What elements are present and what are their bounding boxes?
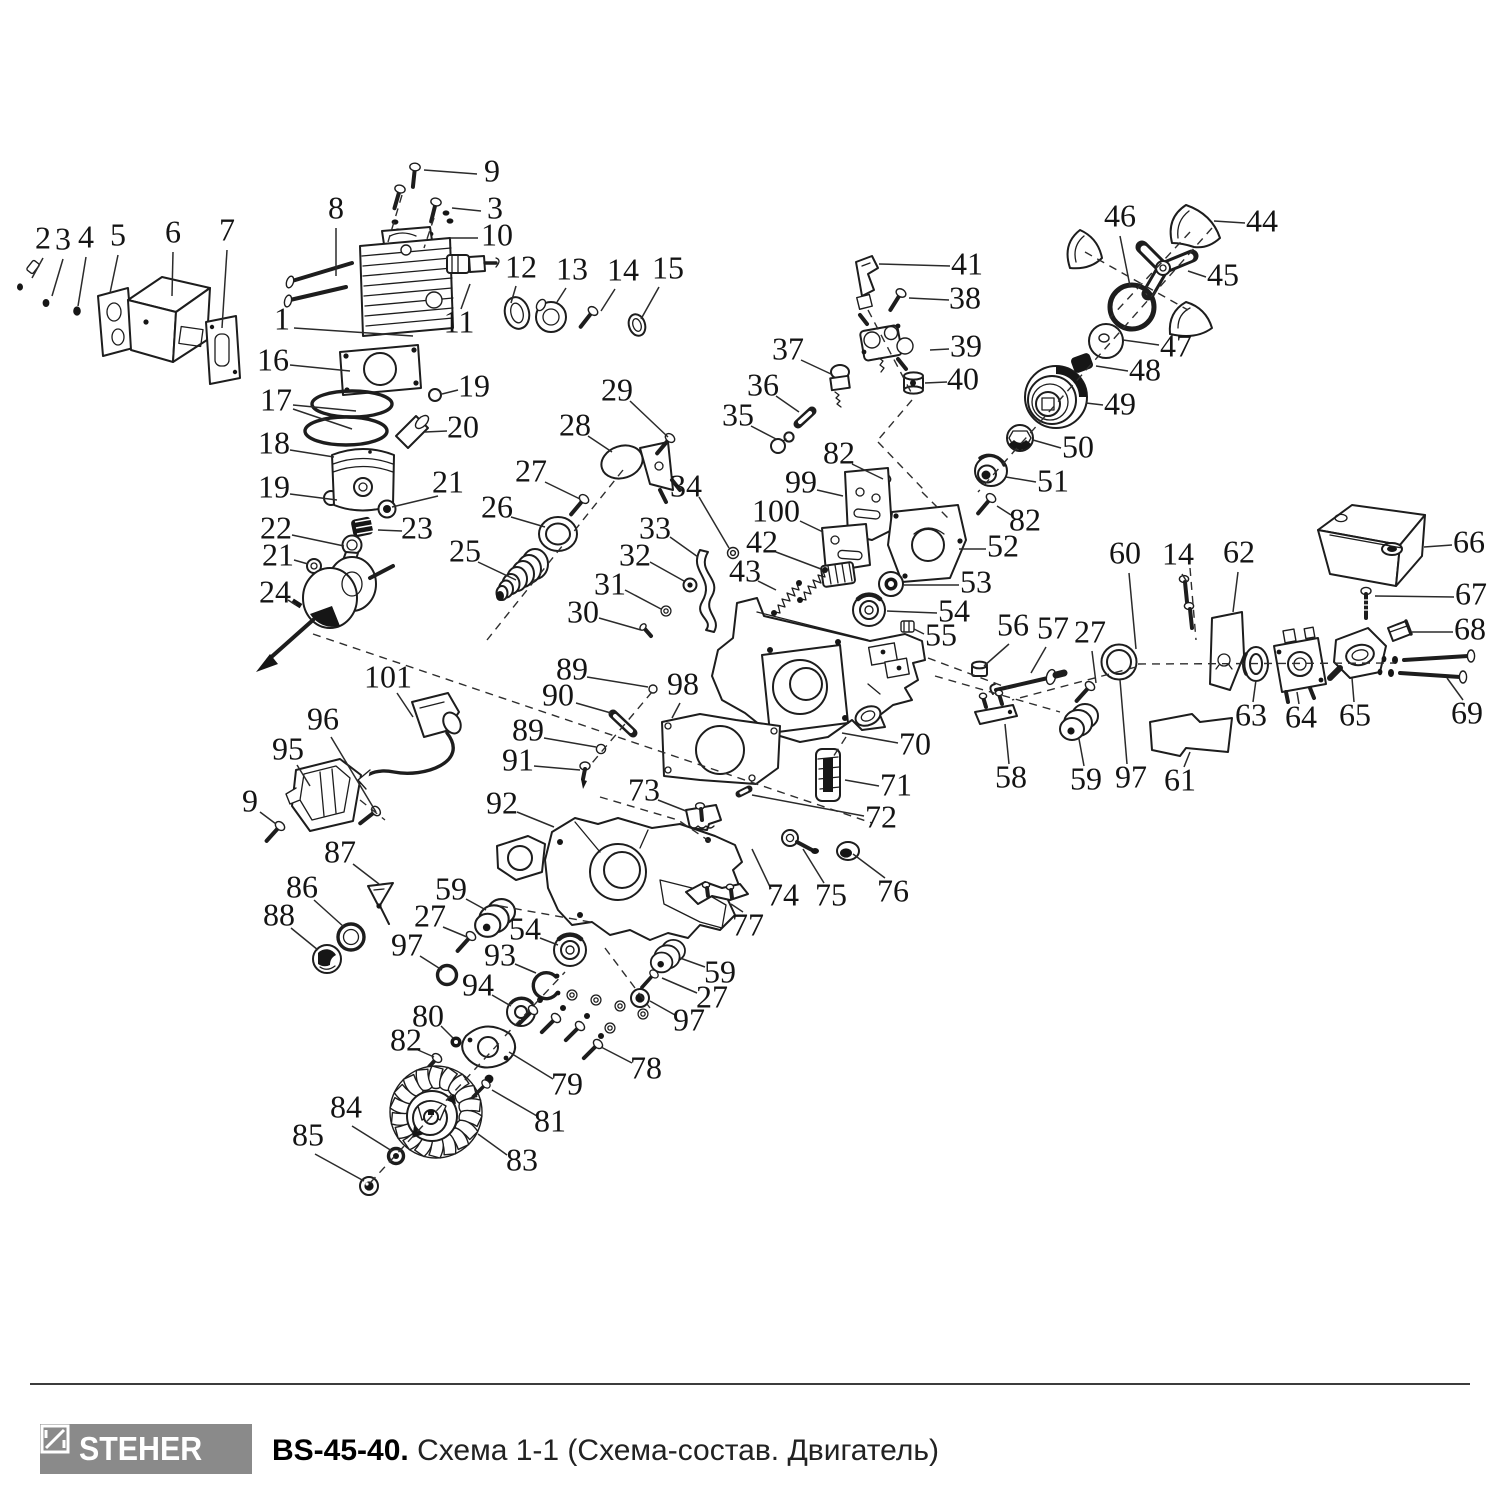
part-cover-13 xyxy=(535,298,566,332)
leader-line-44 xyxy=(1214,221,1245,223)
part-label-43: 43 xyxy=(729,552,761,588)
part-label-65: 65 xyxy=(1339,696,1371,732)
part-label-21: 21 xyxy=(432,463,464,499)
part-label-13: 13 xyxy=(556,250,588,286)
part-label-14: 14 xyxy=(607,251,639,287)
part-label-27: 27 xyxy=(1074,613,1106,649)
part-label-81: 81 xyxy=(534,1102,566,1138)
leader-line-59 xyxy=(680,958,705,967)
part-seal-26 xyxy=(539,517,577,551)
part-clutch-shoe-left xyxy=(1068,230,1102,268)
part-pin-55 xyxy=(901,621,914,632)
part-plug-cap-101 xyxy=(358,693,464,789)
part-oil-pump-39 xyxy=(860,315,913,372)
part-spark-plug xyxy=(447,255,499,273)
part-clip-68 xyxy=(1388,621,1411,641)
model-number: BS-45-40. xyxy=(272,1434,409,1467)
brand-logo: STEHER xyxy=(40,1424,252,1474)
part-screw-67 xyxy=(1361,587,1371,618)
part-label-78: 78 xyxy=(630,1049,662,1085)
leader-line-38 xyxy=(909,298,949,300)
leader-line-3 xyxy=(452,208,481,211)
part-piston-pin xyxy=(396,413,431,448)
part-label-73: 73 xyxy=(628,771,660,807)
leader-line-19 xyxy=(290,494,337,500)
exploded-parts-diagram: 2345678931011112131415161719201819212223… xyxy=(0,0,1500,1500)
part-label-45: 45 xyxy=(1207,256,1239,292)
part-label-19: 19 xyxy=(258,468,290,504)
footer-divider xyxy=(30,1383,1470,1385)
part-oiler-75 xyxy=(782,830,819,854)
leader-line-27 xyxy=(545,482,580,499)
part-label-48: 48 xyxy=(1129,351,1161,387)
part-elbow-41 xyxy=(856,256,878,309)
part-springs-43 xyxy=(771,567,828,616)
leader-line-5 xyxy=(110,255,118,293)
leader-line-46 xyxy=(1120,236,1130,286)
part-label-23: 23 xyxy=(401,509,433,545)
part-label-18: 18 xyxy=(258,424,290,460)
page: 2345678931011112131415161719201819212223… xyxy=(0,0,1500,1500)
part-worm-59c xyxy=(1060,704,1098,740)
part-grommet-71 xyxy=(816,749,840,801)
part-35 xyxy=(771,432,794,453)
part-cover-52 xyxy=(888,505,966,582)
leader-line-6 xyxy=(172,252,173,296)
part-screw-14 xyxy=(577,305,600,330)
part-label-101: 101 xyxy=(364,658,412,694)
leader-line-91 xyxy=(534,766,580,770)
leader-line-56 xyxy=(984,644,1009,666)
part-label-75: 75 xyxy=(815,876,847,912)
part-clutch-shoe-44 xyxy=(1171,205,1220,247)
brand-name: STEHER xyxy=(79,1430,202,1468)
leader-line-92 xyxy=(517,812,554,827)
part-label-25: 25 xyxy=(449,532,481,568)
part-label-97: 97 xyxy=(1115,758,1147,794)
leader-line-48 xyxy=(1096,366,1128,371)
part-label-82: 82 xyxy=(823,434,855,470)
leader-line-3 xyxy=(52,259,63,296)
part-label-62: 62 xyxy=(1223,533,1255,569)
leader-line-19 xyxy=(442,390,458,394)
leader-line-97 xyxy=(1120,680,1127,764)
leader-line-70 xyxy=(842,733,898,743)
part-label-39: 39 xyxy=(950,327,982,363)
leader-line-21 xyxy=(294,560,308,564)
leader-line-47 xyxy=(1123,340,1159,345)
part-label-51: 51 xyxy=(1037,462,1069,498)
leader-line-59 xyxy=(466,899,486,910)
part-hex-50 xyxy=(1007,425,1033,451)
part-label-82: 82 xyxy=(390,1021,422,1057)
part-label-85: 85 xyxy=(292,1116,324,1152)
part-needle-bearing-23 xyxy=(350,516,374,538)
part-label-29: 29 xyxy=(601,371,633,407)
part-bolts-8 xyxy=(283,263,352,308)
part-label-60: 60 xyxy=(1109,534,1141,570)
part-bushing-40 xyxy=(904,372,923,393)
leader-line-15 xyxy=(641,287,659,319)
part-bearing-54b xyxy=(554,934,586,966)
leader-line-29 xyxy=(630,401,668,437)
part-label-95: 95 xyxy=(272,730,304,766)
leader-line-14 xyxy=(601,289,615,311)
part-screw-96 xyxy=(357,805,382,828)
part-oring-46 xyxy=(1110,285,1154,329)
leader-line-57 xyxy=(1031,647,1046,673)
part-cylinder xyxy=(360,227,453,336)
part-seal-97c xyxy=(631,989,649,1007)
leader-line-27 xyxy=(443,927,467,937)
part-label-70: 70 xyxy=(899,725,931,761)
part-bolts-69 xyxy=(1378,650,1475,683)
part-label-2: 2 xyxy=(35,219,51,255)
part-pin-72 xyxy=(739,789,749,794)
leader-line-34 xyxy=(699,497,729,548)
part-screw-82b xyxy=(974,492,997,517)
leader-line-97 xyxy=(650,1001,675,1015)
part-label-77: 77 xyxy=(732,906,764,942)
part-label-50: 50 xyxy=(1062,428,1094,464)
part-label-98: 98 xyxy=(667,665,699,701)
part-label-36: 36 xyxy=(747,366,779,402)
part-label-52: 52 xyxy=(987,527,1019,563)
part-gasket-7 xyxy=(206,316,240,384)
part-label-24: 24 xyxy=(259,573,291,609)
leader-line-71 xyxy=(845,780,879,786)
leader-line-94 xyxy=(492,995,511,1006)
part-37 xyxy=(830,365,849,407)
part-label-11: 11 xyxy=(444,303,475,339)
part-muffler xyxy=(128,277,210,362)
part-label-34: 34 xyxy=(670,467,702,503)
leader-line-79 xyxy=(509,1052,553,1079)
part-gasket-12 xyxy=(501,295,532,332)
leader-line-22 xyxy=(292,535,344,546)
leader-line-37 xyxy=(801,360,831,374)
part-plate-61 xyxy=(1150,714,1232,756)
part-flywheel-83 xyxy=(389,1066,482,1158)
part-label-94: 94 xyxy=(462,966,494,1002)
leader-line-23 xyxy=(378,530,402,531)
leader-line-7 xyxy=(222,250,227,328)
part-label-10: 10 xyxy=(481,216,513,252)
part-label-14: 14 xyxy=(1162,535,1194,571)
part-label-44: 44 xyxy=(1246,202,1278,238)
part-label-83: 83 xyxy=(506,1141,538,1177)
part-clutch-spider-45 xyxy=(1142,247,1192,294)
leader-line-9 xyxy=(424,170,477,174)
part-ignition-coil-95 xyxy=(286,759,361,831)
part-label-71: 71 xyxy=(880,766,912,802)
part-label-28: 28 xyxy=(559,406,591,442)
part-bracket-58 xyxy=(975,690,1017,724)
part-label-8: 8 xyxy=(328,189,344,225)
part-snapring-93 xyxy=(533,973,560,999)
part-label-67: 67 xyxy=(1455,575,1487,611)
leader-line-35 xyxy=(751,426,776,439)
part-label-41: 41 xyxy=(951,245,983,281)
part-nut-32 xyxy=(684,579,697,592)
leader-line-17 xyxy=(293,405,356,411)
part-label-16: 16 xyxy=(257,341,289,377)
part-washer-31 xyxy=(661,606,671,616)
leader-line-49 xyxy=(1086,403,1103,405)
leader-line-27 xyxy=(662,978,697,993)
part-label-38: 38 xyxy=(949,279,981,315)
part-screw-38 xyxy=(886,287,907,313)
part-washer-47 xyxy=(1089,324,1123,358)
part-carburetor-64 xyxy=(1274,627,1326,702)
part-label-61: 61 xyxy=(1164,761,1196,797)
part-label-9: 9 xyxy=(484,152,500,188)
part-washer-21a xyxy=(379,501,396,518)
leader-line-97 xyxy=(420,956,442,970)
part-bracket-73 xyxy=(686,803,721,830)
leader-line-55 xyxy=(914,629,924,634)
part-label-19: 19 xyxy=(458,367,490,403)
part-washer-15 xyxy=(626,312,648,338)
part-label-37: 37 xyxy=(772,330,804,366)
part-label-88: 88 xyxy=(263,896,295,932)
leader-line-86 xyxy=(314,900,344,927)
leader-line-30 xyxy=(599,618,641,630)
part-label-56: 56 xyxy=(997,606,1029,642)
part-label-46: 46 xyxy=(1104,197,1136,233)
part-nut-56 xyxy=(972,662,987,676)
part-label-69: 69 xyxy=(1451,694,1483,730)
leader-line-85 xyxy=(315,1154,364,1181)
part-label-33: 33 xyxy=(639,509,671,545)
part-airbox-66 xyxy=(1318,505,1425,586)
leader-line-45 xyxy=(1188,271,1206,277)
part-label-87: 87 xyxy=(324,833,356,869)
part-label-15: 15 xyxy=(652,249,684,285)
part-label-84: 84 xyxy=(330,1088,362,1124)
part-label-63: 63 xyxy=(1235,696,1267,732)
leader-line-39 xyxy=(930,349,949,350)
part-circlip-19a xyxy=(429,389,441,401)
leader-line-89 xyxy=(587,677,648,687)
leader-line-81 xyxy=(492,1090,537,1116)
leader-line-62 xyxy=(1233,572,1238,612)
leader-line-100 xyxy=(800,521,823,532)
part-label-58: 58 xyxy=(995,758,1027,794)
part-clutch-drum-49 xyxy=(1025,366,1087,428)
part-label-55: 55 xyxy=(925,616,957,652)
leader-line-42 xyxy=(776,552,821,569)
leader-line-72 xyxy=(752,795,864,816)
leader-line-90 xyxy=(576,703,611,713)
leader-line-40 xyxy=(925,382,947,383)
leader-line-28 xyxy=(588,436,612,452)
leader-line-88 xyxy=(291,928,318,950)
part-label-26: 26 xyxy=(481,488,513,524)
leader-line-93 xyxy=(515,964,536,973)
leader-line-89 xyxy=(544,738,596,747)
part-cap-76 xyxy=(837,842,859,860)
leader-line-73 xyxy=(658,800,686,811)
part-screw-27d xyxy=(638,968,659,990)
part-brake-band-33 xyxy=(697,550,716,632)
part-label-1: 1 xyxy=(274,300,290,336)
part-gasket-98 xyxy=(662,714,780,784)
part-gasket-16 xyxy=(340,345,421,395)
part-label-17: 17 xyxy=(260,381,292,417)
part-flange-92 xyxy=(497,836,545,880)
part-screw-27a xyxy=(567,493,590,518)
leader-line-99 xyxy=(817,490,843,496)
part-label-96: 96 xyxy=(307,700,339,736)
part-label-59: 59 xyxy=(1070,760,1102,796)
part-label-72: 72 xyxy=(865,798,897,834)
part-label-12: 12 xyxy=(505,248,537,284)
part-bearing-54a xyxy=(853,594,885,626)
leader-line-67 xyxy=(1375,596,1454,597)
part-label-49: 49 xyxy=(1104,385,1136,421)
part-ring-86 xyxy=(338,924,364,950)
part-label-47: 47 xyxy=(1160,327,1192,363)
part-label-3: 3 xyxy=(55,220,71,256)
scheme-name: Схема 1-1 (Схема-состав. Двигатель) xyxy=(409,1434,939,1467)
leader-line-60 xyxy=(1129,573,1136,649)
leader-line-66 xyxy=(1424,545,1452,547)
part-label-27: 27 xyxy=(696,978,728,1014)
part-label-5: 5 xyxy=(110,216,126,252)
diagram-title: BS-45-40. Схема 1-1 (Схема-состав. Двига… xyxy=(272,1434,939,1468)
part-label-57: 57 xyxy=(1037,609,1069,645)
part-label-21: 21 xyxy=(262,536,294,572)
part-label-27: 27 xyxy=(515,452,547,488)
part-label-4: 4 xyxy=(78,218,94,254)
leader-line-18 xyxy=(290,450,334,457)
part-bearing-51 xyxy=(975,455,1007,486)
part-manifold-65 xyxy=(1330,628,1386,678)
leader-line-32 xyxy=(650,562,684,581)
diagram-artwork xyxy=(17,163,1475,1195)
leader-line-31 xyxy=(625,590,661,609)
leader-line-83 xyxy=(478,1134,507,1155)
part-label-90: 90 xyxy=(542,676,574,712)
part-damper-42 xyxy=(821,562,856,587)
part-seal-53 xyxy=(879,572,903,596)
leader-line-87 xyxy=(353,864,379,884)
part-label-9: 9 xyxy=(242,782,258,818)
leader-line-33 xyxy=(670,537,698,557)
leader-line-20 xyxy=(425,431,447,432)
part-label-76: 76 xyxy=(877,872,909,908)
leader-line-36 xyxy=(776,396,799,412)
part-label-68: 68 xyxy=(1454,610,1486,646)
leader-line-84 xyxy=(352,1126,392,1151)
leader-line-13 xyxy=(557,288,566,302)
part-gasket-79 xyxy=(462,1026,515,1067)
part-label-91: 91 xyxy=(502,741,534,777)
part-36 xyxy=(798,411,812,424)
muffler-fasteners xyxy=(17,260,81,316)
leader-line-101 xyxy=(397,693,413,717)
part-label-59: 59 xyxy=(435,870,467,906)
part-label-92: 92 xyxy=(486,784,518,820)
part-gasket-62 xyxy=(1210,612,1244,690)
leader-line-54 xyxy=(887,611,937,613)
leader-line-9 xyxy=(260,812,276,824)
leader-line-50 xyxy=(1033,440,1061,448)
leader-line-51 xyxy=(1006,477,1036,482)
part-screws-78 xyxy=(515,990,648,1062)
leader-line-78 xyxy=(601,1047,632,1063)
leader-line-4 xyxy=(78,257,86,306)
part-label-79: 79 xyxy=(551,1065,583,1101)
part-label-20: 20 xyxy=(447,408,479,444)
leader-line-98 xyxy=(672,703,680,718)
part-label-40: 40 xyxy=(947,360,979,396)
part-label-74: 74 xyxy=(767,876,799,912)
part-worm-59b xyxy=(651,940,685,972)
part-crankcase-lower-74 xyxy=(545,818,742,940)
brand-logo-icon xyxy=(40,1424,70,1454)
part-label-6: 6 xyxy=(165,213,181,249)
part-label-64: 64 xyxy=(1285,698,1317,734)
leader-line-26 xyxy=(511,517,545,527)
part-bracket-87 xyxy=(368,883,393,924)
part-label-7: 7 xyxy=(219,211,235,247)
part-piston-ring-lower xyxy=(305,417,387,445)
part-gasket-5 xyxy=(98,288,133,356)
part-label-66: 66 xyxy=(1453,523,1485,559)
leader-line-41 xyxy=(879,264,950,266)
